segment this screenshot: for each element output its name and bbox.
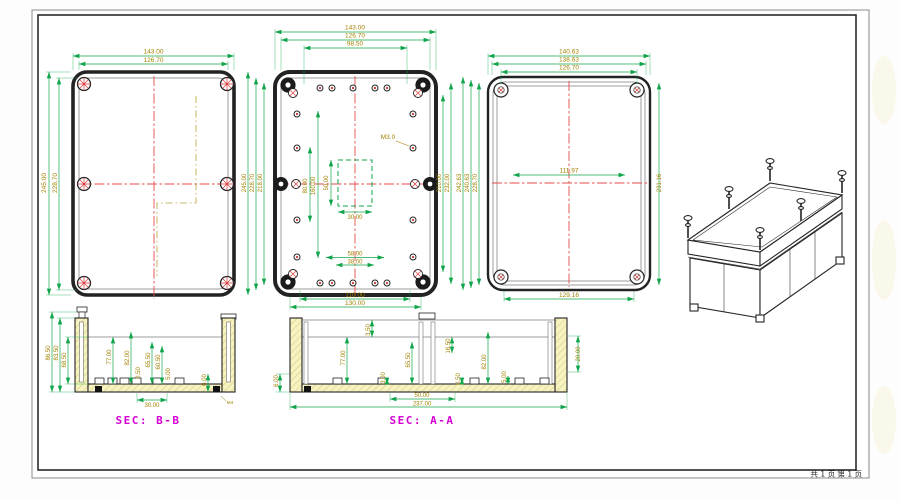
dim-label: 86.50 — [46, 345, 52, 361]
page-info: 共 1 页 第 1 页 — [811, 469, 863, 479]
dim-label: 110.00 — [345, 292, 365, 299]
dim-label: 231.16 — [657, 173, 663, 192]
dim-label: 245.00 — [41, 173, 48, 193]
dim-label: 126.70 — [144, 57, 164, 64]
top-view-lid: 140.63 138.63 126.70 111.97 242.63 240.6… — [457, 49, 663, 303]
dim-label: 65.50 — [406, 352, 412, 368]
dim-label: 77.00 — [107, 349, 113, 365]
dim-label: 130.00 — [345, 300, 365, 307]
dim-label: 60.50 — [156, 354, 162, 370]
dim-label: 58.00 — [347, 252, 363, 258]
dim-label: 126.70 — [559, 65, 579, 72]
dim-label: 143.00 — [144, 49, 164, 56]
dim-label: 232.00 — [445, 173, 451, 192]
cad-drawing: 143.00 126.70 245.00 228.70 245.00 228.7… — [0, 0, 900, 500]
dim-label: 218.00 — [258, 173, 264, 192]
section-aa-label: SEC: A-A — [390, 414, 455, 427]
thread-callout: M4 — [227, 400, 234, 406]
dim-label: 228.70 — [52, 173, 59, 193]
dim-label: 242.63 — [457, 173, 463, 192]
dim-label: 111.97 — [560, 168, 579, 175]
dim-label: 6.00 — [202, 374, 208, 386]
dim-label: 138.63 — [559, 57, 579, 64]
dim-label: 160.00 — [311, 176, 317, 195]
dim-label: 210.00 — [437, 173, 443, 192]
dim-label: 50.00 — [324, 175, 330, 191]
dim-label: 237.00 — [413, 402, 432, 408]
dim-label: 3.00 — [381, 372, 387, 384]
dim-label: 38.00 — [347, 260, 363, 266]
dim-label: 65.50 — [146, 352, 152, 368]
dim-label: 0.50 — [136, 367, 142, 379]
dim-label: 5.00 — [502, 371, 508, 383]
dim-label: 245.00 — [242, 173, 248, 192]
dim-label: 77.00 — [341, 350, 347, 366]
thread-callout: M3.0 — [381, 134, 396, 141]
drawing-sheet: 143.00 126.70 245.00 228.70 245.00 228.7… — [0, 0, 900, 500]
dim-label: 228.70 — [250, 173, 256, 192]
dim-label: 50.00 — [414, 393, 430, 399]
section-bb-label: SEC: B-B — [116, 414, 181, 427]
dim-label: 98.50 — [347, 41, 364, 48]
dim-label: 83.50 — [54, 345, 60, 361]
dim-label: 16.50 — [446, 338, 452, 354]
dim-label: 129.16 — [559, 292, 579, 299]
dim-label: 140.63 — [559, 49, 579, 56]
dim-label: 143.00 — [345, 25, 365, 32]
dim-label: 20.00 — [576, 346, 582, 362]
dim-label: 80.00 — [303, 178, 309, 194]
dim-label: 240.63 — [465, 173, 471, 192]
dim-label: 0.50 — [456, 373, 462, 385]
dim-label: 30.00 — [347, 215, 363, 221]
dim-label: 5.00 — [166, 368, 172, 380]
dim-label: 30.00 — [144, 403, 160, 409]
dim-label: 82.00 — [125, 350, 131, 366]
dim-label: 68.50 — [62, 352, 68, 368]
dim-label: 82.00 — [482, 354, 488, 370]
dim-label: 3.50 — [366, 324, 372, 336]
dim-label: 228.70 — [473, 173, 479, 192]
dim-label: 6.00 — [274, 375, 280, 387]
dim-label: 126.70 — [345, 33, 365, 40]
